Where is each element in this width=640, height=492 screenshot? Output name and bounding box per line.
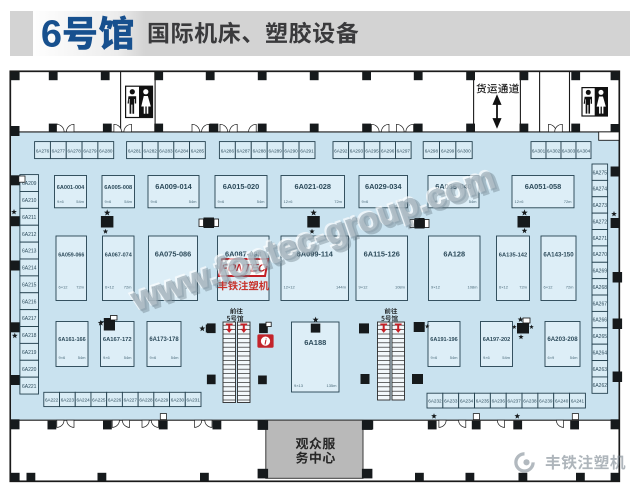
svg-text:6A279: 6A279 bbox=[83, 148, 97, 153]
svg-text:9×6: 9×6 bbox=[431, 355, 439, 360]
svg-text:9×6: 9×6 bbox=[151, 199, 159, 204]
svg-text:6×12: 6×12 bbox=[544, 285, 554, 290]
svg-text:6A301: 6A301 bbox=[532, 148, 546, 153]
svg-text:6A299: 6A299 bbox=[441, 148, 455, 153]
svg-text:6A239: 6A239 bbox=[539, 399, 553, 404]
svg-text:6×12: 6×12 bbox=[499, 285, 509, 290]
svg-text:6A227: 6A227 bbox=[124, 398, 138, 403]
svg-text:6A203-208: 6A203-208 bbox=[547, 336, 578, 343]
svg-text:9×12: 9×12 bbox=[431, 285, 441, 290]
svg-text:6A222: 6A222 bbox=[45, 398, 59, 403]
svg-text:6A302: 6A302 bbox=[547, 148, 561, 153]
svg-text:6A237: 6A237 bbox=[507, 399, 521, 404]
svg-text:72m: 72m bbox=[564, 199, 572, 204]
svg-text:6A265: 6A265 bbox=[593, 334, 608, 340]
svg-text:6A217: 6A217 bbox=[22, 316, 37, 322]
svg-text:54m: 54m bbox=[502, 355, 510, 360]
svg-text:6A281: 6A281 bbox=[128, 148, 142, 153]
svg-text:6A270: 6A270 bbox=[593, 252, 608, 258]
svg-text:6A295: 6A295 bbox=[365, 148, 379, 153]
svg-text:6A115-126: 6A115-126 bbox=[364, 250, 400, 259]
svg-text:54m: 54m bbox=[78, 355, 86, 360]
svg-text:6A282: 6A282 bbox=[144, 148, 158, 153]
svg-text:6A009-014: 6A009-014 bbox=[155, 182, 192, 191]
svg-text:6A197-202: 6A197-202 bbox=[483, 337, 510, 343]
svg-text:6A269: 6A269 bbox=[593, 269, 608, 275]
svg-text:6A271: 6A271 bbox=[593, 236, 608, 242]
svg-text:144m: 144m bbox=[336, 285, 347, 290]
svg-text:6A231: 6A231 bbox=[186, 398, 200, 403]
svg-text:6A067-074: 6A067-074 bbox=[105, 253, 132, 259]
svg-text:6A021-028: 6A021-028 bbox=[294, 182, 331, 191]
svg-text:6A296: 6A296 bbox=[381, 148, 395, 153]
svg-text:6A224: 6A224 bbox=[76, 398, 90, 403]
svg-text:108m: 108m bbox=[395, 285, 406, 290]
svg-text:6A263: 6A263 bbox=[593, 367, 608, 373]
svg-text:6A262: 6A262 bbox=[593, 383, 608, 389]
svg-text:135m: 135m bbox=[326, 383, 337, 388]
svg-text:6A161-166: 6A161-166 bbox=[58, 337, 85, 343]
svg-text:6A286: 6A286 bbox=[221, 148, 235, 153]
svg-text:6A167-172: 6A167-172 bbox=[103, 337, 133, 343]
svg-text:6×12: 6×12 bbox=[59, 285, 69, 290]
svg-text:6A240: 6A240 bbox=[555, 399, 569, 404]
svg-text:6A300: 6A300 bbox=[457, 148, 471, 153]
svg-text:54m: 54m bbox=[189, 199, 197, 204]
svg-text:6A267: 6A267 bbox=[593, 301, 608, 307]
svg-text:9×6: 9×6 bbox=[483, 355, 491, 360]
svg-text:6A214: 6A214 bbox=[22, 266, 37, 272]
svg-text:6A128: 6A128 bbox=[443, 250, 465, 259]
svg-text:6×12: 6×12 bbox=[105, 285, 115, 290]
svg-text:6A015-020: 6A015-020 bbox=[223, 182, 260, 191]
svg-text:54m: 54m bbox=[570, 355, 578, 360]
svg-text:54m: 54m bbox=[450, 355, 458, 360]
svg-text:6A303: 6A303 bbox=[562, 148, 576, 153]
svg-text:6A283: 6A283 bbox=[159, 148, 173, 153]
svg-text:54m: 54m bbox=[257, 199, 265, 204]
svg-text:6A291: 6A291 bbox=[300, 148, 314, 153]
svg-text:6A277: 6A277 bbox=[52, 148, 66, 153]
svg-text:6A233: 6A233 bbox=[444, 399, 458, 404]
svg-text:9×6: 9×6 bbox=[57, 199, 65, 204]
svg-text:6A287: 6A287 bbox=[237, 148, 251, 153]
svg-text:6A005-008: 6A005-008 bbox=[104, 185, 132, 191]
svg-text:6A188: 6A188 bbox=[304, 338, 326, 347]
svg-text:12×6: 12×6 bbox=[515, 199, 525, 204]
svg-text:6A275: 6A275 bbox=[593, 170, 608, 176]
svg-text:6A135-142: 6A135-142 bbox=[499, 253, 527, 259]
svg-text:54m: 54m bbox=[124, 355, 132, 360]
svg-text:6A225: 6A225 bbox=[92, 398, 106, 403]
svg-text:6A213: 6A213 bbox=[22, 249, 37, 255]
svg-text:6A272: 6A272 bbox=[593, 219, 608, 225]
svg-text:6A230: 6A230 bbox=[171, 398, 185, 403]
svg-text:9×6: 9×6 bbox=[218, 199, 226, 204]
svg-text:6A284: 6A284 bbox=[175, 148, 189, 153]
svg-text:9×13: 9×13 bbox=[294, 383, 304, 388]
svg-text:6A293: 6A293 bbox=[350, 148, 364, 153]
svg-text:54m: 54m bbox=[124, 199, 132, 204]
svg-text:6A001-004: 6A001-004 bbox=[57, 185, 85, 191]
svg-text:9×6: 9×6 bbox=[59, 355, 67, 360]
svg-text:6A297: 6A297 bbox=[397, 148, 411, 153]
svg-text:9×12: 9×12 bbox=[359, 285, 369, 290]
svg-text:12×12: 12×12 bbox=[284, 285, 296, 290]
svg-text:6A289: 6A289 bbox=[269, 148, 283, 153]
svg-text:6A191-196: 6A191-196 bbox=[430, 337, 457, 343]
svg-text:6A075-086: 6A075-086 bbox=[155, 250, 192, 259]
svg-text:108m: 108m bbox=[467, 285, 478, 290]
svg-text:6A226: 6A226 bbox=[108, 398, 122, 403]
svg-text:6A223: 6A223 bbox=[61, 398, 75, 403]
svg-text:6: 6 bbox=[41, 14, 62, 56]
svg-text:6A218: 6A218 bbox=[22, 333, 37, 339]
svg-text:6A228: 6A228 bbox=[139, 398, 153, 403]
svg-text:6A276: 6A276 bbox=[36, 148, 50, 153]
svg-text:6A236: 6A236 bbox=[492, 399, 506, 404]
svg-text:9×6: 9×6 bbox=[103, 355, 111, 360]
svg-text:6A292: 6A292 bbox=[334, 148, 348, 153]
svg-text:6A210: 6A210 bbox=[22, 198, 37, 204]
svg-text:9×6: 9×6 bbox=[150, 355, 158, 360]
svg-text:6A059-066: 6A059-066 bbox=[58, 253, 84, 259]
svg-text:54m: 54m bbox=[76, 199, 84, 204]
svg-text:6A290: 6A290 bbox=[284, 148, 298, 153]
svg-text:6A264: 6A264 bbox=[593, 350, 608, 356]
svg-text:6A274: 6A274 bbox=[593, 187, 608, 193]
svg-text:6A266: 6A266 bbox=[593, 318, 608, 324]
svg-text:9×6: 9×6 bbox=[105, 199, 113, 204]
svg-text:6A288: 6A288 bbox=[253, 148, 267, 153]
svg-text:6A051-058: 6A051-058 bbox=[525, 182, 562, 191]
svg-text:6A278: 6A278 bbox=[68, 148, 82, 153]
svg-text:6A211: 6A211 bbox=[22, 215, 36, 221]
svg-text:6A273: 6A273 bbox=[593, 203, 608, 209]
svg-text:6×9: 6×9 bbox=[548, 355, 556, 360]
svg-text:12×6: 12×6 bbox=[284, 199, 294, 204]
svg-text:6A219: 6A219 bbox=[22, 350, 37, 356]
svg-text:6A232: 6A232 bbox=[428, 399, 442, 404]
svg-text:54m: 54m bbox=[171, 355, 179, 360]
svg-text:6A216: 6A216 bbox=[22, 299, 37, 305]
svg-text:6A143-150: 6A143-150 bbox=[543, 252, 574, 259]
svg-text:6A280: 6A280 bbox=[99, 148, 113, 153]
svg-text:6A221: 6A221 bbox=[22, 384, 37, 390]
svg-text:6A241: 6A241 bbox=[571, 399, 585, 404]
svg-text:6A238: 6A238 bbox=[523, 399, 537, 404]
svg-text:6A173-178: 6A173-178 bbox=[149, 337, 179, 343]
svg-text:72m: 72m bbox=[519, 285, 527, 290]
svg-text:6A304: 6A304 bbox=[577, 148, 591, 153]
svg-text:6A212: 6A212 bbox=[22, 232, 37, 238]
svg-text:6A215: 6A215 bbox=[22, 282, 37, 288]
svg-text:72m: 72m bbox=[76, 285, 84, 290]
svg-text:6A285: 6A285 bbox=[191, 148, 205, 153]
svg-text:6A229: 6A229 bbox=[155, 398, 169, 403]
svg-text:72m: 72m bbox=[566, 285, 574, 290]
svg-text:6A298: 6A298 bbox=[425, 148, 439, 153]
svg-text:6A220: 6A220 bbox=[22, 367, 37, 373]
svg-text:6A235: 6A235 bbox=[476, 399, 490, 404]
svg-text:72m: 72m bbox=[334, 199, 342, 204]
svg-text:6A234: 6A234 bbox=[460, 399, 474, 404]
svg-text:6A268: 6A268 bbox=[593, 285, 608, 291]
